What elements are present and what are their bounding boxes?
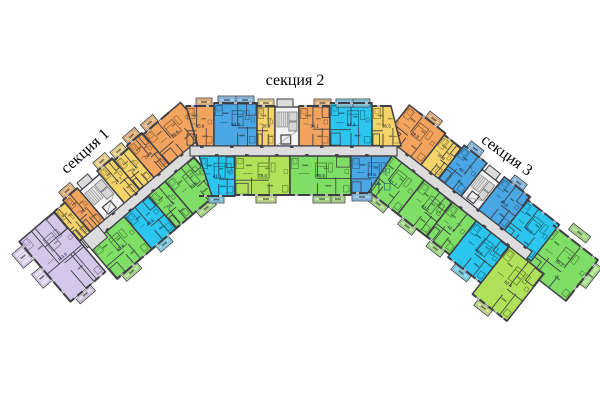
svg-text:54.3: 54.3 [231,122,240,127]
svg-text:80.5: 80.5 [316,173,325,178]
svg-text:35.5: 35.5 [382,124,391,129]
svg-text:26.9: 26.9 [262,124,271,129]
svg-text:секция 2: секция 2 [266,72,325,89]
svg-text:41.1: 41.1 [213,174,222,179]
svg-text:35.8: 35.8 [196,124,205,129]
svg-text:79.4: 79.4 [258,173,267,178]
svg-text:54.4: 54.4 [347,122,356,127]
svg-text:38.1: 38.1 [310,124,319,129]
svg-text:40.6: 40.6 [367,172,376,177]
